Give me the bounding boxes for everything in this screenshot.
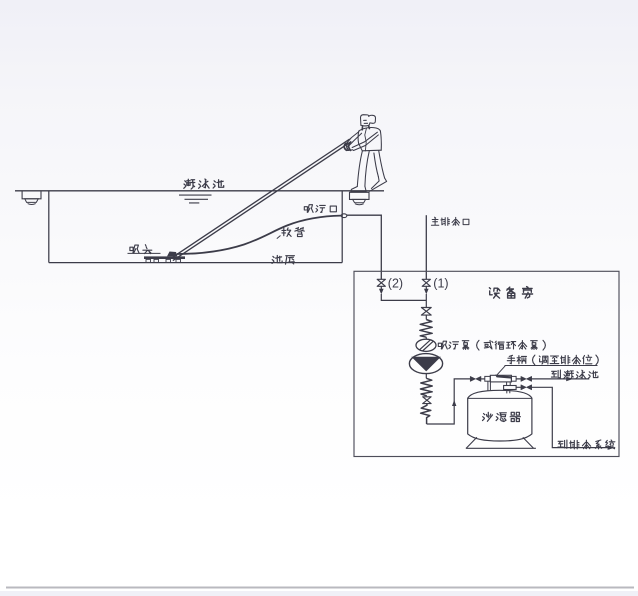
svg-text:(2): (2) [388, 276, 403, 290]
svg-text:(1): (1) [433, 276, 448, 290]
